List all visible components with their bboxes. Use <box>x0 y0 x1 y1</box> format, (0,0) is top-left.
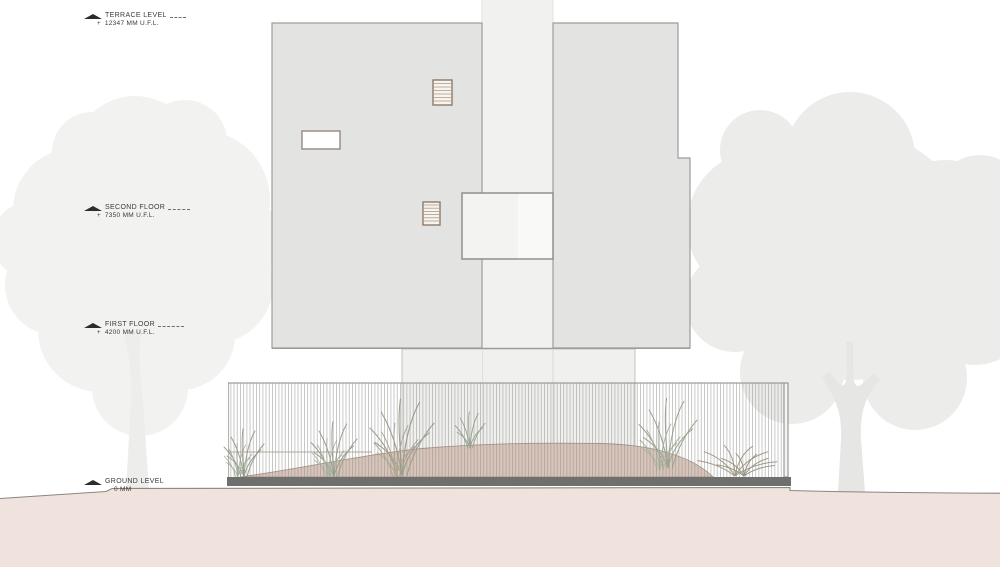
building-right-mass <box>553 23 690 348</box>
leader-line <box>158 325 184 327</box>
level-name: SECOND FLOOR <box>105 204 165 212</box>
plus-mark: + <box>97 212 101 220</box>
level-value: 7350 MM U.F.L. <box>105 212 155 220</box>
building-left-mass <box>272 23 482 348</box>
level-marker-second-floor: SECOND FLOOR + 7350 MM U.F.L. <box>84 204 190 220</box>
level-name: FIRST FLOOR <box>105 321 155 329</box>
level-marker-first-floor: FIRST FLOOR + 4200 MM U.F.L. <box>84 321 184 337</box>
level-value-row: + 7350 MM U.F.L. <box>97 212 190 220</box>
louver-window-upper <box>433 80 452 105</box>
level-value: 12347 MM U.F.L. <box>105 20 159 28</box>
level-value-row: + 12347 MM U.F.L. <box>97 20 186 28</box>
balcony-recess <box>462 193 553 259</box>
plus-mark: + <box>97 329 101 337</box>
plain-window <box>302 131 340 149</box>
plus-mark: + <box>97 20 101 28</box>
level-value: 4200 MM U.F.L. <box>105 329 155 337</box>
level-datum-icon <box>84 206 102 211</box>
level-name: GROUND LEVEL <box>105 478 164 486</box>
fence-end-post <box>784 383 788 477</box>
fence-base-strip <box>227 477 791 486</box>
level-name: TERRACE LEVEL <box>105 12 167 20</box>
fence <box>228 383 788 477</box>
ground-fill <box>0 488 1000 567</box>
louver-window-lower <box>423 202 440 225</box>
elevation-drawing: TERRACE LEVEL + 12347 MM U.F.L. SECOND F… <box>0 0 1000 567</box>
level-datum-icon <box>84 14 102 19</box>
fence-slats <box>228 383 788 477</box>
level-marker-terrace: TERRACE LEVEL + 12347 MM U.F.L. <box>84 12 186 28</box>
leader-line <box>168 208 190 210</box>
level-value: 0 MM <box>114 486 131 494</box>
level-value-row: 0 MM <box>114 486 164 494</box>
level-value-row: + 4200 MM U.F.L. <box>97 329 184 337</box>
level-datum-icon <box>84 323 102 328</box>
stair-tower-strip <box>482 0 553 350</box>
level-marker-ground: GROUND LEVEL 0 MM <box>84 478 164 494</box>
level-datum-icon <box>84 480 102 485</box>
leader-line <box>170 16 186 18</box>
